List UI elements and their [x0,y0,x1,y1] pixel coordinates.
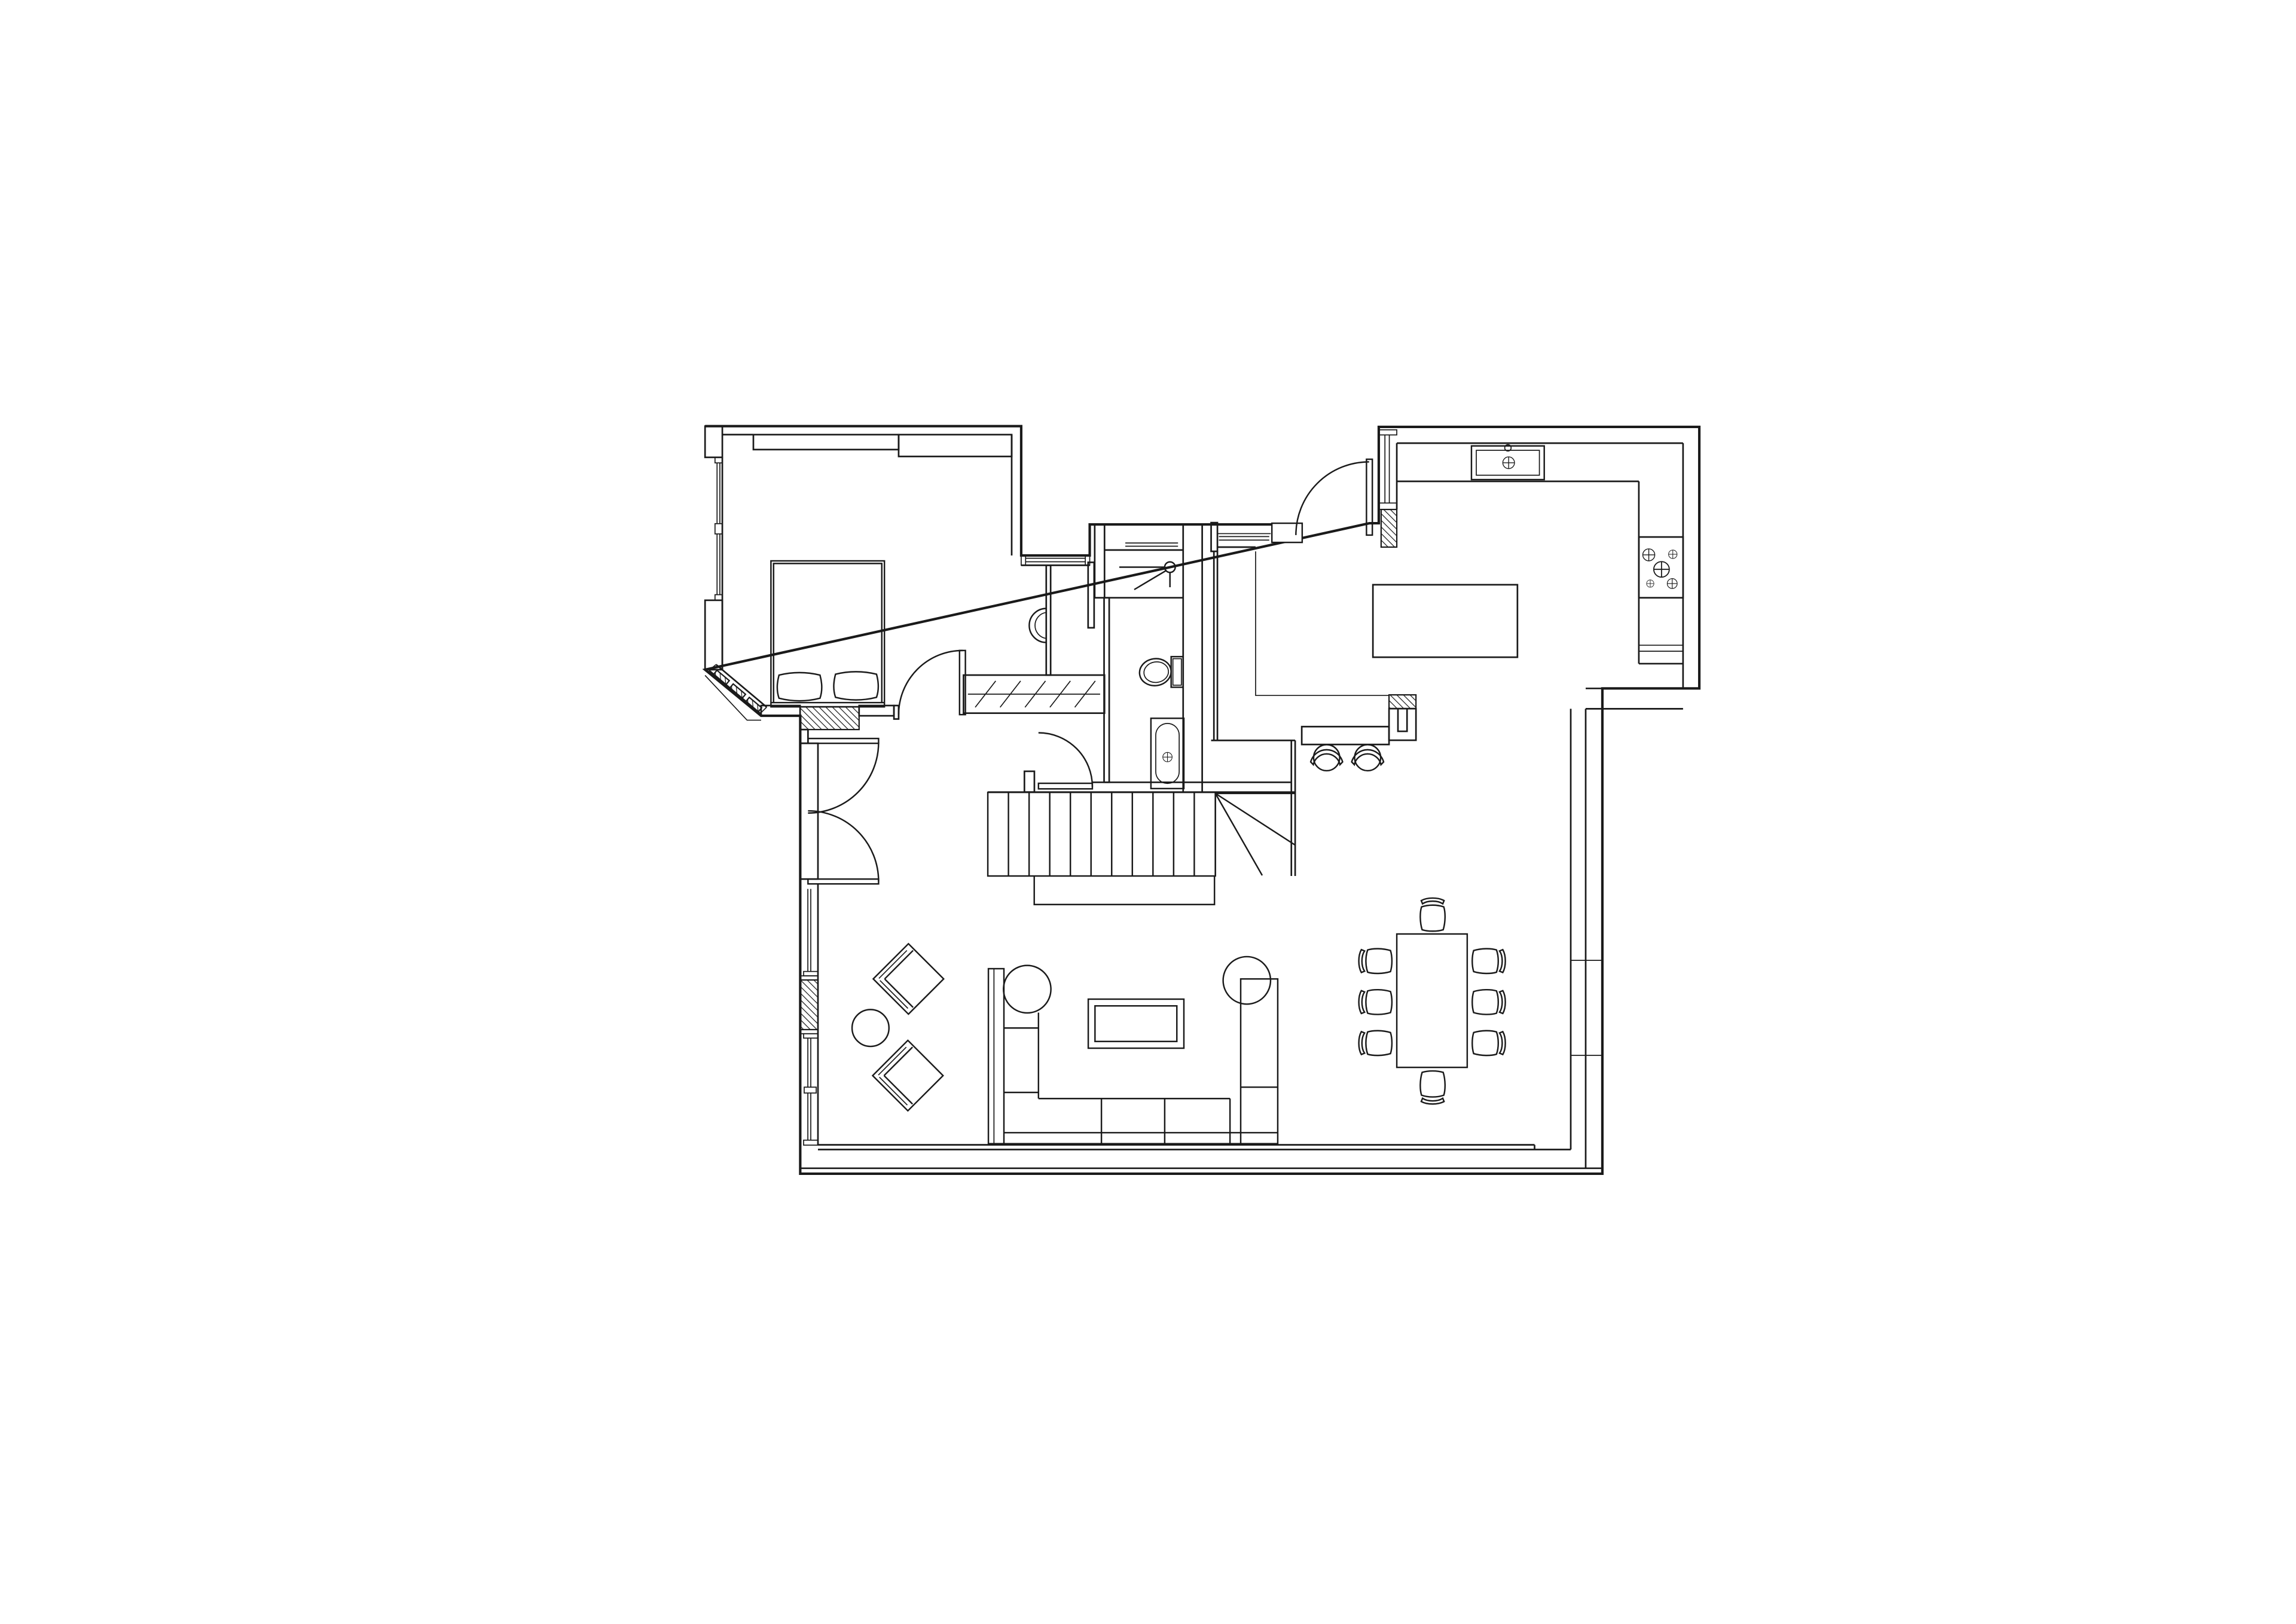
dining-area [1359,898,1506,1104]
dining-chair [1420,1071,1445,1104]
perimeter-inner-lines [818,709,1602,1168]
bedroom-radiator [800,707,859,729]
winder-line [1216,793,1262,875]
tub-faucet-cross [1163,752,1173,762]
kitchen-door [1272,459,1372,542]
dressing-north-window [1021,555,1090,565]
staircase [988,792,1295,905]
basin-stub-wall [1046,565,1051,675]
bay-corner-window [705,664,767,720]
kitchen-se-step [1586,688,1683,709]
bar-stool [1311,744,1342,771]
cooktop [1639,537,1683,598]
bedroom-south-wall [761,706,899,729]
corridor-north-window [1217,533,1271,540]
kitchen [1217,430,1683,771]
living-room [800,884,1278,1145]
breakfast-bar [1302,726,1389,771]
toilet [1138,657,1183,688]
living-west-window-wall [800,884,818,1145]
dining-chair [1359,949,1392,973]
coffee-table [1088,999,1184,1048]
shower-north-window [1125,543,1178,546]
hall-and-stair-walls [988,523,1389,876]
bar-stool [1352,744,1384,771]
sofa-sectional [988,957,1278,1144]
bedroom [705,426,1012,729]
sofa-corner-round-left [1003,966,1051,1013]
washbasin [1029,609,1046,643]
dining-chair [1472,949,1505,973]
chimney-pier [1389,695,1416,740]
round-side-table [852,1009,889,1046]
dining-chair [1359,1031,1392,1055]
pillow [833,671,878,700]
kitchen-sink [1471,445,1544,480]
kitchen-floor-edge [1256,551,1389,695]
armchair [873,944,944,1014]
hall-door [1039,733,1092,789]
sofa-corner-round-right [1223,957,1271,1004]
bedroom-west-window [705,457,722,670]
dressing-east-wall [1088,562,1094,627]
stair-lower-outline [1034,876,1214,905]
dining-chair [1359,990,1392,1014]
winder-line [1216,793,1295,845]
kitchen-counter [1397,481,1683,664]
wardrobe [963,675,1104,713]
living-radiator [800,980,818,1030]
kitchen-island [1373,585,1518,657]
dining-table [1397,934,1467,1067]
dining-chair [1420,898,1445,931]
bedroom-top-wall-band [705,426,1012,457]
entry-lobby [800,729,878,884]
bathtub [1151,718,1184,789]
kitchen-wall-pier [1381,509,1397,547]
armchair [872,1040,943,1111]
floor-plan-canvas [0,0,2296,1624]
dining-chair [1472,990,1505,1014]
dining-chair [1472,1031,1505,1055]
pillow [777,673,822,701]
bedroom-door [899,651,966,715]
sink-cross [1503,457,1515,469]
kitchen-west-window [1379,430,1397,509]
floor-plan-drawing [0,0,2296,1624]
dressing-hall [963,555,1104,713]
